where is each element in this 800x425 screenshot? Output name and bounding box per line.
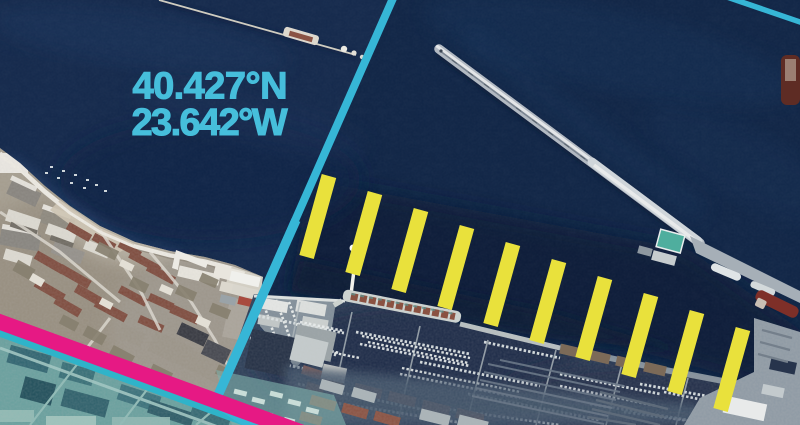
svg-text:23.642°W: 23.642°W [132,102,288,144]
